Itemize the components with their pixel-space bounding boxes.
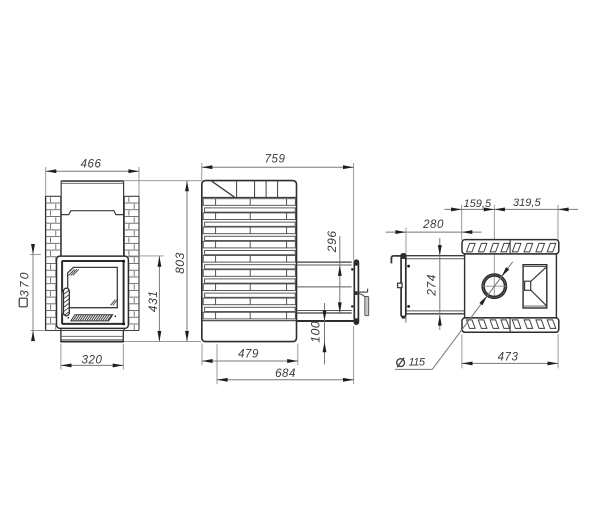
svg-text:803: 803 — [173, 252, 187, 274]
svg-text:479: 479 — [238, 349, 259, 361]
svg-text:319,5: 319,5 — [513, 197, 541, 209]
svg-text:159,5: 159,5 — [464, 198, 492, 210]
svg-text:684: 684 — [275, 368, 296, 380]
svg-text:296: 296 — [325, 230, 339, 253]
svg-text:759: 759 — [265, 154, 286, 166]
svg-text:100: 100 — [308, 321, 322, 343]
svg-text:466: 466 — [81, 158, 102, 170]
svg-text:473: 473 — [498, 352, 519, 364]
svg-text:370: 370 — [17, 270, 31, 297]
svg-text:280: 280 — [422, 219, 444, 231]
svg-text:320: 320 — [82, 355, 103, 367]
svg-text:115: 115 — [408, 356, 425, 368]
svg-text:431: 431 — [146, 290, 160, 312]
svg-text:274: 274 — [425, 274, 439, 297]
